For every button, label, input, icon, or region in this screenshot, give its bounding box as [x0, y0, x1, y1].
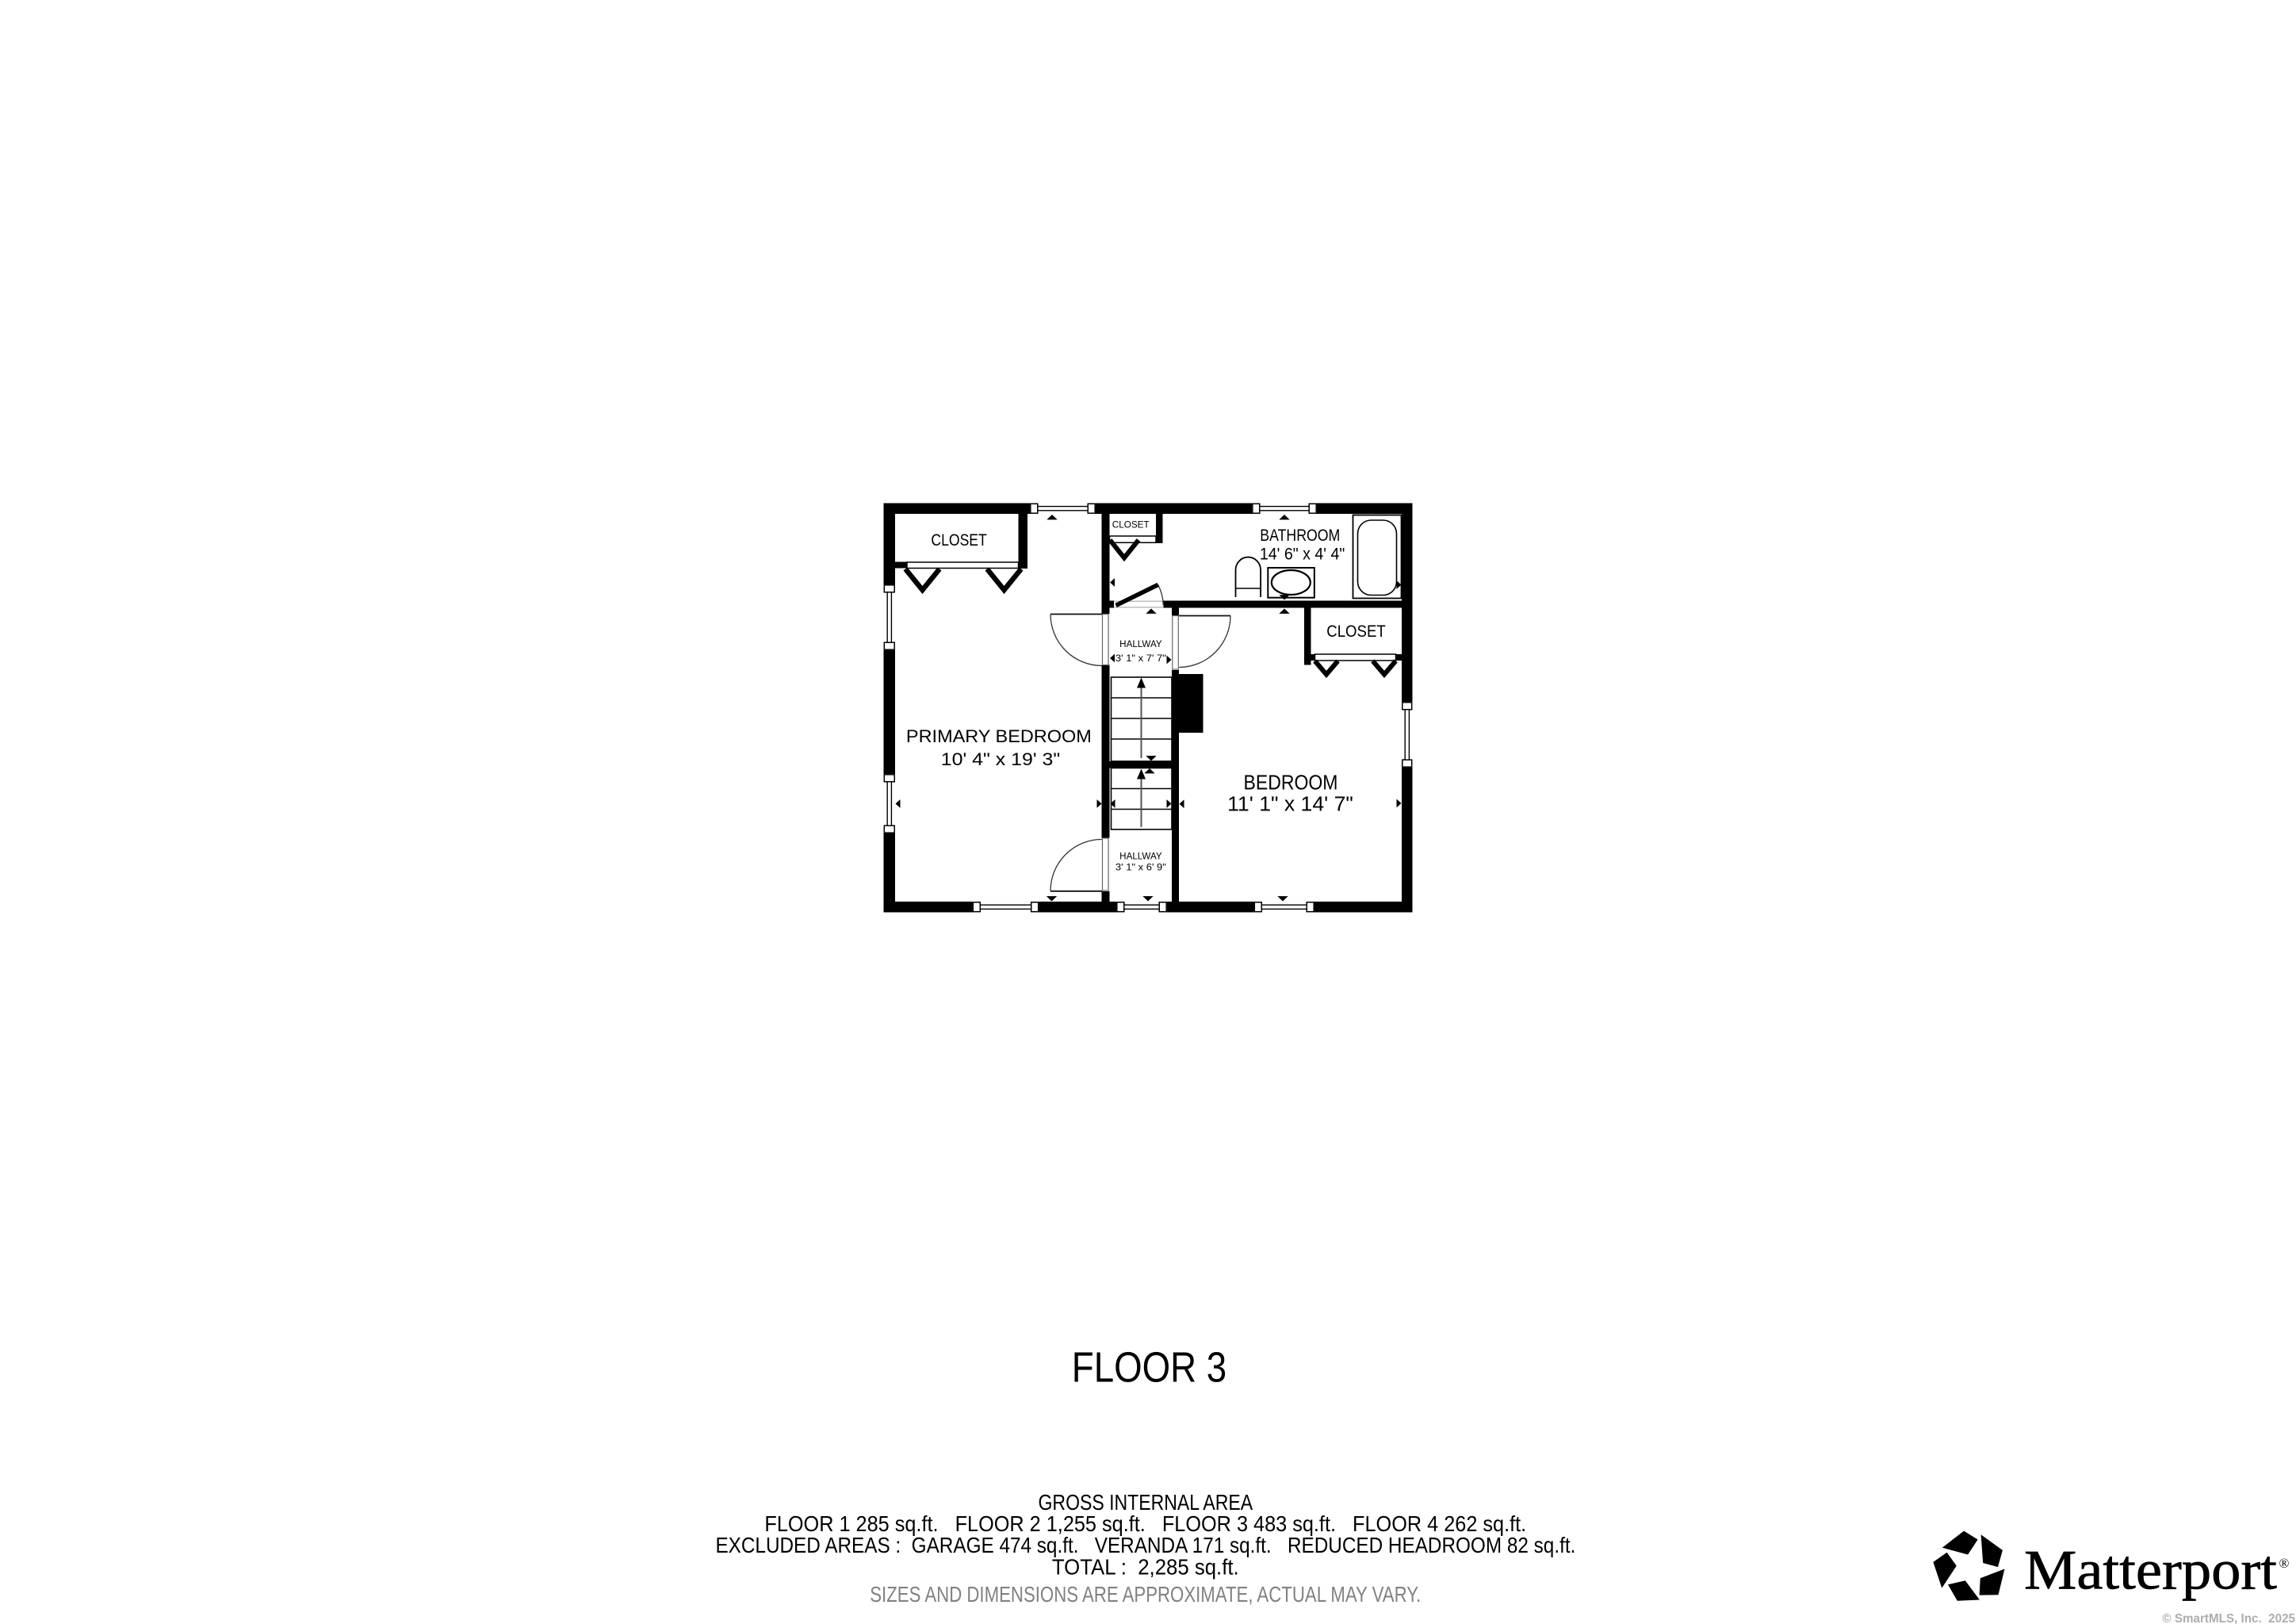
- svg-text:BEDROOM: BEDROOM: [1244, 772, 1338, 794]
- svg-text:3' 1" x 7' 7": 3' 1" x 7' 7": [1115, 654, 1166, 664]
- svg-text:BATHROOM: BATHROOM: [1260, 527, 1340, 545]
- svg-text:PRIMARY BEDROOM: PRIMARY BEDROOM: [906, 726, 1092, 746]
- svg-text:TOTAL : 2,285 sq.ft.: TOTAL : 2,285 sq.ft.: [1052, 1554, 1239, 1579]
- svg-text:®: ®: [2279, 1556, 2290, 1571]
- svg-text:HALLWAY: HALLWAY: [1119, 852, 1162, 861]
- svg-text:11' 1" x 14' 7": 11' 1" x 14' 7": [1227, 794, 1353, 816]
- svg-text:14' 6" x 4' 4": 14' 6" x 4' 4": [1260, 545, 1345, 563]
- svg-text:FLOOR 3: FLOOR 3: [1072, 1344, 1226, 1392]
- svg-text:CLOSET: CLOSET: [1326, 622, 1386, 641]
- svg-text:EXCLUDED AREAS : GARAGE 474 s: EXCLUDED AREAS : GARAGE 474 sq.ft. VERAN…: [715, 1533, 1575, 1557]
- svg-text:CLOSET: CLOSET: [1112, 521, 1150, 530]
- svg-text:© SmartMLS, Inc. 2025: © SmartMLS, Inc. 2025: [2162, 1612, 2295, 1624]
- svg-text:CLOSET: CLOSET: [931, 531, 987, 550]
- svg-text:HALLWAY: HALLWAY: [1119, 640, 1162, 649]
- svg-text:10' 4" x 19' 3": 10' 4" x 19' 3": [941, 749, 1061, 769]
- svg-text:3' 1" x 6' 9": 3' 1" x 6' 9": [1115, 863, 1166, 872]
- svg-text:SIZES AND DIMENSIONS ARE APPRO: SIZES AND DIMENSIONS ARE APPROXIMATE, AC…: [870, 1582, 1421, 1607]
- svg-text:Matterport: Matterport: [2024, 1540, 2277, 1602]
